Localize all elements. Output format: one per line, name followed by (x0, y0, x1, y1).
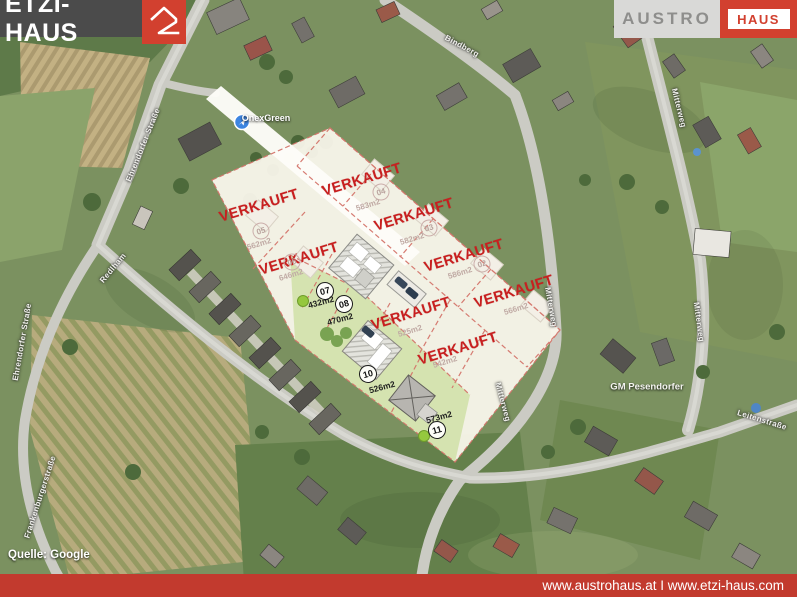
austro-haus-logo-box: HAUS (728, 9, 790, 29)
austro-haus-logo-text-right: HAUS (737, 12, 780, 27)
satellite-map (0, 0, 797, 597)
etzi-haus-logo-mark-icon (142, 0, 186, 44)
source-attribution: Quelle: Google (8, 549, 90, 561)
footer-bar: www.austrohaus.at I www.etzi-haus.com (0, 574, 797, 597)
footer-urls[interactable]: www.austrohaus.at I www.etzi-haus.com (542, 578, 784, 593)
flyer-canvas: Ehrendorfer Straße Ehrendorfer Straße Re… (0, 0, 797, 597)
austro-haus-logo-left: AUSTRO (614, 0, 720, 38)
austro-haus-logo-text-left: AUSTRO (622, 9, 712, 29)
etzi-haus-logo-text: ETZI-HAUS (5, 0, 142, 48)
austro-haus-logo-right: HAUS (720, 0, 797, 38)
etzi-haus-logo: ETZI-HAUS (0, 0, 142, 37)
